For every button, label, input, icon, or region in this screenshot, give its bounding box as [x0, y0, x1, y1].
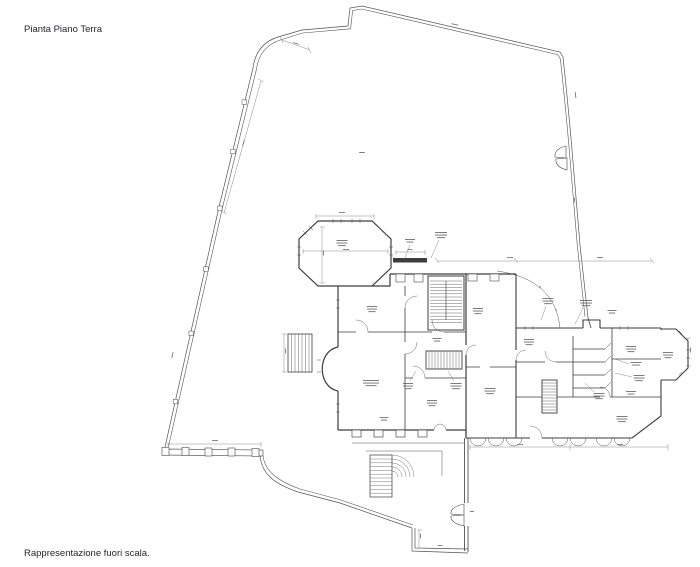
connecting-wall [393, 258, 427, 263]
west-block-walls [322, 274, 516, 438]
scale-note: Rappresentazione fuori scala. [24, 548, 150, 559]
east-wing-walls [466, 274, 661, 438]
door-swings [356, 296, 610, 438]
east-staircase [542, 380, 557, 413]
garden-boundary-wall [162, 6, 591, 553]
boundary-pillars-left [173, 100, 246, 404]
east-bay-window [661, 329, 688, 380]
octagonal-room [299, 221, 391, 286]
dimension-lines [168, 37, 691, 548]
terrace-steps [352, 443, 464, 497]
west-block-partitions [338, 286, 516, 430]
main-staircase [428, 276, 464, 330]
right-gate-leaves [555, 146, 567, 170]
villa-building [288, 219, 690, 446]
small-staircase [426, 351, 462, 369]
room-annotations [337, 152, 674, 422]
dimension-numbers [171, 23, 691, 546]
west-external-stair [288, 334, 312, 372]
floor-plan-drawing [0, 0, 700, 567]
lower-gate-leaves [451, 504, 464, 526]
floor-plan-page: Pianta Piano Terra [0, 0, 700, 567]
south-arcade [470, 438, 630, 446]
